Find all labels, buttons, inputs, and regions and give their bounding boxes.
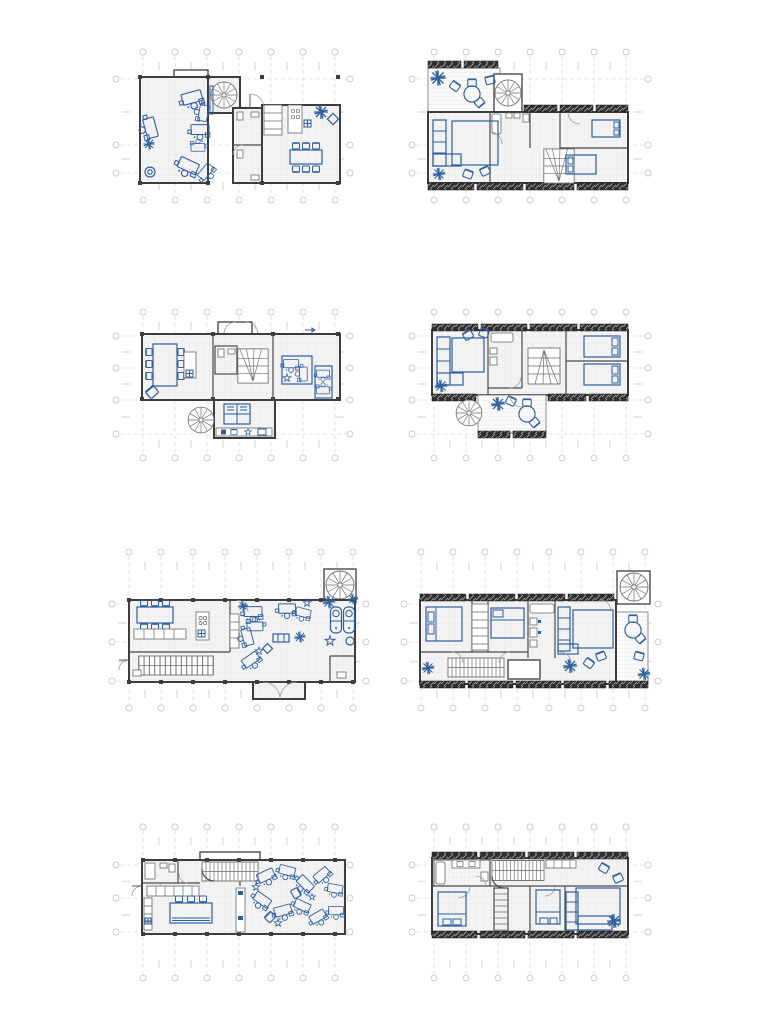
floor-plan-2 xyxy=(409,49,651,203)
north-arrow xyxy=(305,328,315,332)
floor-plan-8 xyxy=(409,824,651,981)
floor-plan-6 xyxy=(401,549,661,711)
floor-plan-1 xyxy=(113,49,353,203)
plant-icon xyxy=(314,105,328,119)
spiral-stair-icon xyxy=(326,571,354,599)
spiral-stair-icon xyxy=(211,82,237,108)
floor-plan-7 xyxy=(113,824,353,981)
stairs-icon xyxy=(528,348,560,384)
spiral-stair-icon xyxy=(188,407,214,433)
spiral-stair-icon xyxy=(456,400,482,426)
floor-plan-4 xyxy=(409,309,651,461)
straight-stair xyxy=(202,862,258,881)
spiral-stair-icon xyxy=(620,573,648,601)
closet xyxy=(472,604,488,650)
spiral-stair-icon xyxy=(495,80,521,106)
sheet-canvas xyxy=(0,0,768,1024)
shelf-divider xyxy=(236,888,245,932)
roof-terrace xyxy=(428,68,500,112)
void xyxy=(508,660,540,679)
kitchen-island xyxy=(184,352,196,378)
straight-stair xyxy=(448,658,504,677)
plant-icon xyxy=(422,662,435,675)
balcony xyxy=(478,395,546,433)
floor-plan-3 xyxy=(113,309,353,461)
floor-plan-5 xyxy=(109,549,369,711)
balcony xyxy=(174,70,208,77)
straight-stair xyxy=(133,656,213,676)
closet xyxy=(546,860,576,868)
plan-sheet xyxy=(0,0,768,1024)
stairs-icon xyxy=(238,349,268,383)
